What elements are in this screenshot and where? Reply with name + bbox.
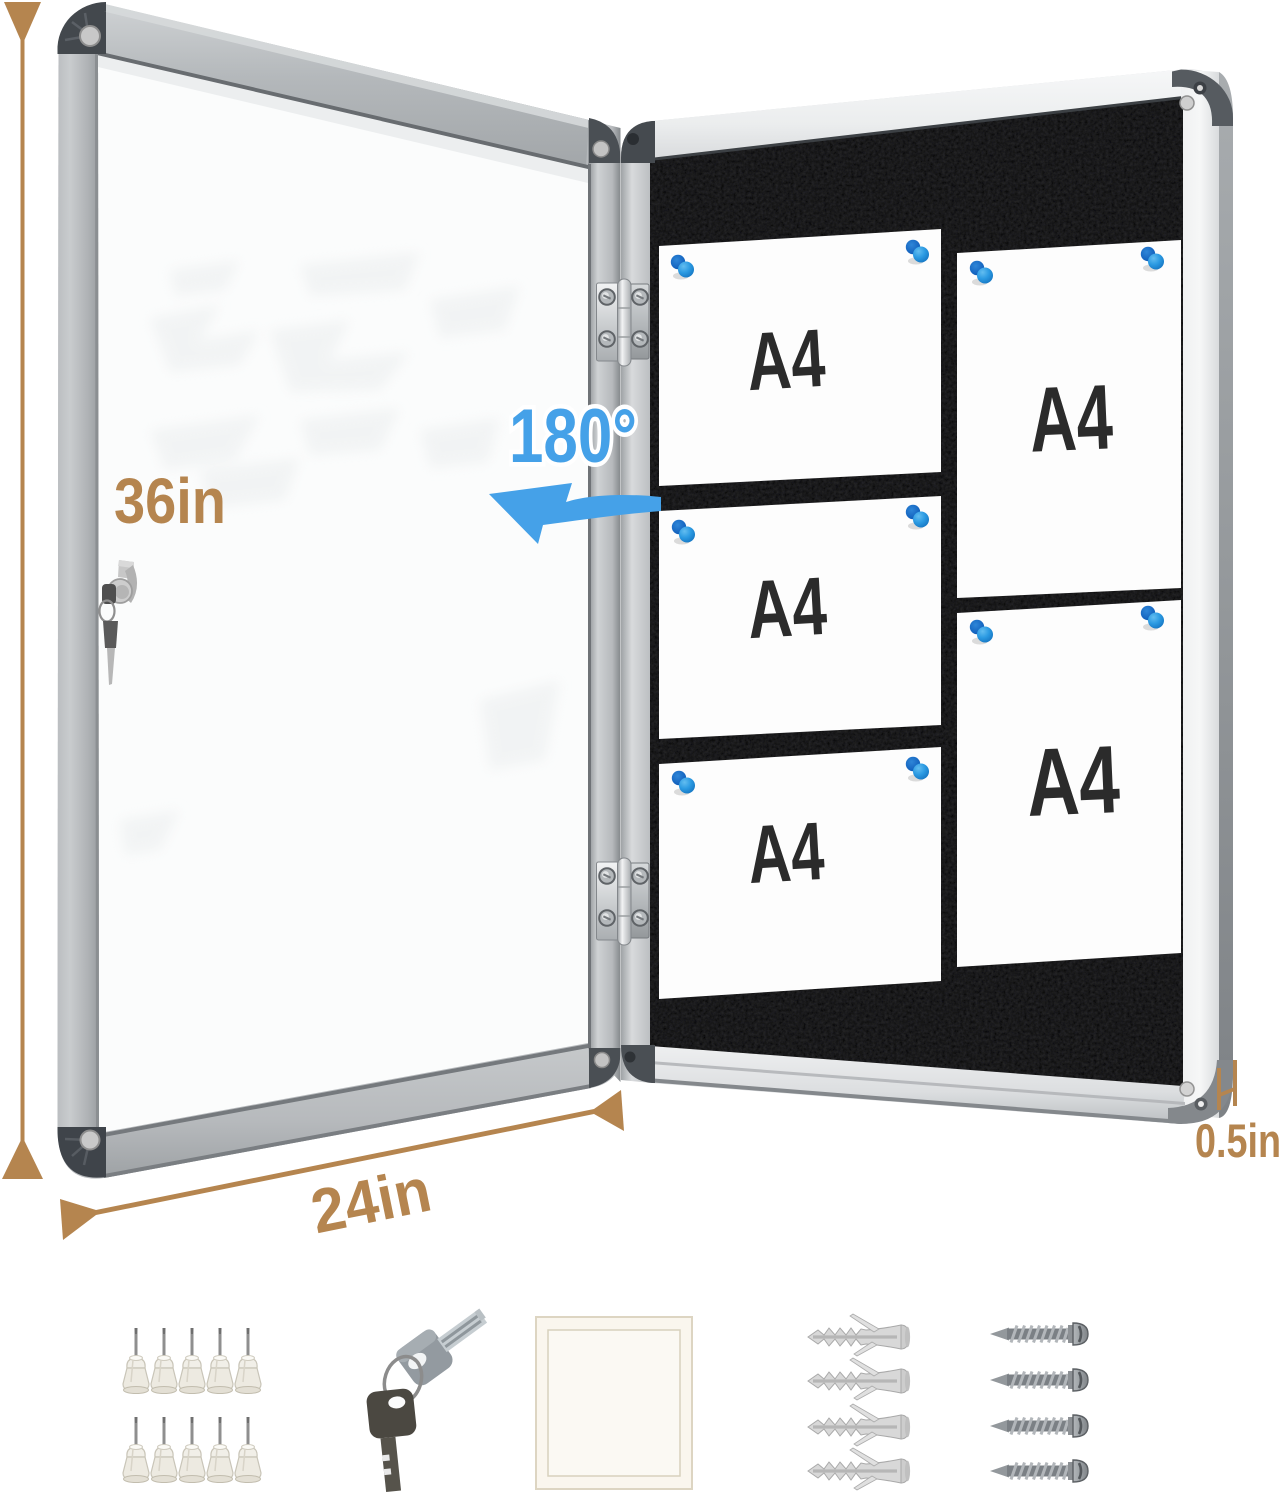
svg-text:A4: A4 [744, 313, 827, 408]
svg-text:180°: 180° [509, 394, 637, 479]
svg-text:0.5in: 0.5in [1195, 1114, 1281, 1167]
svg-text:A4: A4 [745, 561, 829, 656]
svg-text:A4: A4 [1027, 366, 1114, 472]
svg-text:A4: A4 [1024, 726, 1122, 837]
svg-text:A4: A4 [745, 806, 826, 901]
svg-text:36in: 36in [114, 465, 226, 537]
